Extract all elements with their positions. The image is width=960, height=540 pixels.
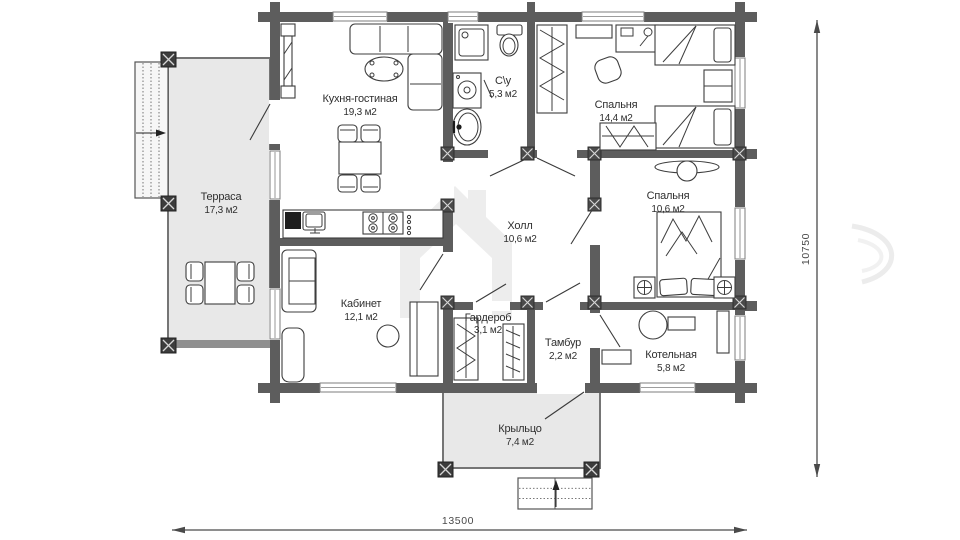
hall-name: Холл [507,220,532,232]
dimension-right: 10750 [800,20,820,477]
bedroom1-desk [616,25,658,52]
terrace-stairs [135,62,168,198]
terrace-edge-rail [161,340,271,348]
bedroom1-name: Спальня [595,99,638,111]
room-label-office: Кабинет 12,1 м2 [341,298,382,323]
room-label-kitchen: Кухня-гостиная 19,3 м2 [322,93,397,118]
toilet [497,25,522,56]
boiler-door-leaf [600,315,620,347]
porch-post [584,462,599,477]
terrace-name: Терраса [201,191,243,203]
bedroom1-wardrobe-low [600,123,656,150]
room-label-bedroom2: Спальня 10,6 м2 [647,190,690,215]
log-stub [745,301,757,311]
porch-name: Крыльцо [498,423,542,435]
bedroom2-name: Спальня [647,190,690,202]
boiler-cabinet [602,350,631,364]
tv-unit [281,24,295,98]
kitchen-area: 19,3 м2 [343,107,377,118]
log-stub [527,2,535,12]
porch-area: 7,4 м2 [506,437,535,448]
vestibule-door-leaf [546,283,580,302]
office-window-left [270,289,280,339]
terrace-post [161,52,176,67]
porch-post [438,462,453,477]
nightstand-lamp-right [714,277,735,298]
wardrobe-name: Гардероб [465,312,512,324]
boiler-name: Котельная [645,349,697,361]
bedroom1-window-top [582,12,644,21]
porch-deck [438,392,600,509]
boiler-window-bottom [640,383,695,392]
room-label-hall: Холл 10,6 м2 [503,220,537,245]
hall-area: 10,6 м2 [503,234,537,245]
arrow-down-icon [814,464,820,477]
wall-bathroom-right [527,22,535,150]
terrace-area: 17,3 м2 [204,205,238,216]
room-label-vestibule: Тамбур 2,2 м2 [545,337,581,362]
bedroom2-area: 10,6 м2 [651,204,685,215]
bathroom-name: С\у [495,75,512,87]
kitchen-sink [303,212,325,233]
porch-steps [518,478,592,509]
dimension-bottom: 13500 [172,515,747,533]
boiler-window-right [735,316,745,360]
arrow-right-icon [734,527,747,533]
double-bed [657,212,721,297]
bedroom2-window-right [735,208,745,259]
wardrobe-area: 3,1 м2 [474,325,503,336]
boiler-pipes [717,311,729,353]
single-bed-2 [655,106,735,148]
arrow-up-icon [814,20,820,33]
room-label-boiler: Котельная 5,8 м2 [645,349,697,374]
vestibule-area: 2,2 м2 [549,351,578,362]
kitchen-name: Кухня-гостиная [322,93,397,105]
wall-wardrobe-right [527,310,535,383]
log-stub [745,149,757,159]
ceiling-light [655,161,719,181]
bedroom1-furniture [537,25,735,150]
office-chair [377,325,399,347]
office-window-bottom [320,383,396,392]
stove [363,212,403,234]
kitchen-window-left [270,151,280,199]
bathroom-area: 5,3 м2 [489,89,518,100]
office-desk [410,302,438,376]
dining-set [338,125,381,192]
washing-machine [453,73,492,108]
single-bed-1 [655,25,735,65]
bedroom1-wardrobe [537,25,567,113]
dimension-height-label: 10750 [800,233,812,265]
bathroom-door-leaf [490,158,528,176]
wardrobe-unit-2 [503,324,524,380]
floor-plan-svg: Терраса 17,3 м2 Кухня-гостиная 19,3 м2 С… [0,0,960,540]
floor-plan-page: Терраса 17,3 м2 Кухня-гостиная 19,3 м2 С… [0,0,960,540]
office-sofa [282,250,316,312]
boiler-area: 5,8 м2 [657,363,686,374]
log-stub [270,2,280,12]
wall-kitchen-office [280,238,443,246]
desk-chair [593,55,624,86]
nightstand-lamp-left [634,277,655,298]
arrow-left-icon [172,527,185,533]
bedroom1-nightstand [704,70,732,102]
log-stub [270,393,280,403]
kitchen-furniture [281,24,443,238]
bathroom-sink [453,109,481,145]
bookcase [282,328,304,382]
room-label-bedroom1: Спальня 14,4 м2 [595,99,638,124]
office-name: Кабинет [341,298,382,310]
boiler-tank [639,311,667,339]
shelf [576,25,612,38]
bedroom1-window-right [735,58,745,108]
dimension-width-label: 13500 [442,515,474,527]
bedroom2-furniture [634,161,735,298]
coffee-table [365,57,403,81]
shower [455,25,488,60]
room-label-bathroom: С\у 5,3 м2 [489,75,518,100]
counter-appliance [285,212,301,229]
boiler-box [668,317,695,330]
office-area: 12,1 м2 [344,312,378,323]
bedroom1-area: 14,4 м2 [599,113,633,124]
bathroom-window-top [448,12,478,21]
wall-interior-v2 [590,150,600,383]
terrace-post [161,196,176,211]
kitchen-window-top [333,12,387,21]
bathroom-furniture [453,25,522,145]
log-stub [735,393,745,403]
bedroom1-door-leaf [537,158,575,176]
terrace-post [161,338,176,353]
vestibule-name: Тамбур [545,337,581,349]
kitchen-counter [283,210,443,238]
log-stub [735,2,745,12]
